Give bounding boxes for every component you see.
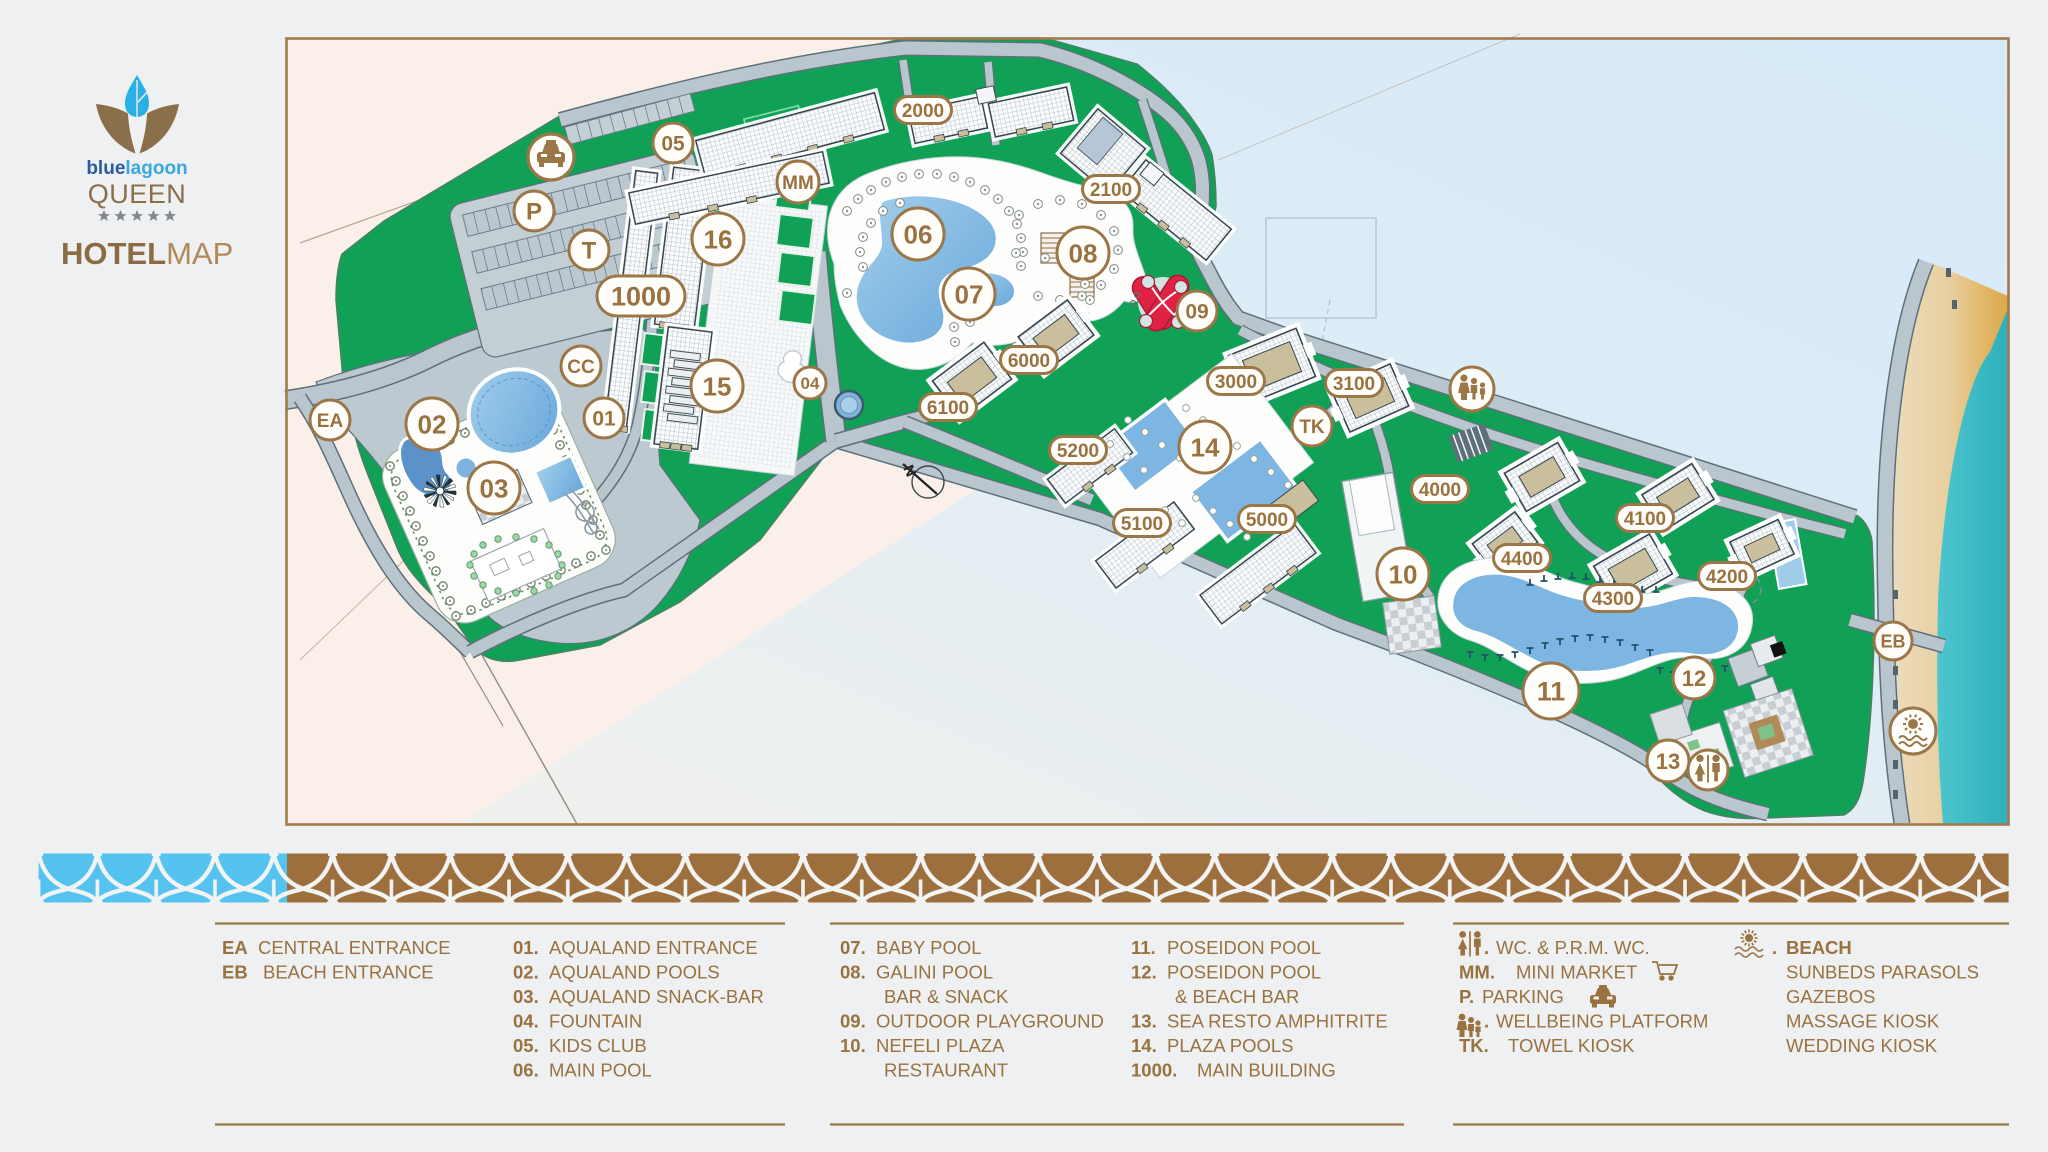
svg-text:10: 10 <box>1389 559 1418 589</box>
svg-text:4000: 4000 <box>1419 480 1461 501</box>
svg-text:HOTELMAP: HOTELMAP <box>61 236 233 271</box>
svg-text:& BEACH BAR: & BEACH BAR <box>1175 986 1299 1007</box>
svg-text:MM: MM <box>782 173 814 194</box>
svg-text:03: 03 <box>480 473 509 503</box>
svg-text:EA: EA <box>317 411 344 432</box>
svg-text:SUNBEDS PARASOLS: SUNBEDS PARASOLS <box>1786 962 1979 983</box>
svg-text:05.KIDS CLUB: 05.KIDS CLUB <box>513 1035 647 1056</box>
svg-text:2100: 2100 <box>1090 180 1132 201</box>
svg-text:14: 14 <box>1191 432 1220 462</box>
svg-text:12: 12 <box>1682 666 1706 691</box>
svg-text:4300: 4300 <box>1592 589 1634 610</box>
svg-text:MM.MINI MARKET: MM.MINI MARKET <box>1459 962 1637 983</box>
svg-text:.WELLBEING PLATFORM: .WELLBEING PLATFORM <box>1484 1011 1708 1032</box>
svg-text:01: 01 <box>592 408 616 431</box>
svg-text:07.BABY POOL: 07.BABY POOL <box>840 937 982 958</box>
svg-text:13: 13 <box>1656 749 1680 774</box>
svg-text:QUEEN: QUEEN <box>88 179 187 209</box>
svg-text:bluelagoon: bluelagoon <box>86 158 187 179</box>
svg-text:4400: 4400 <box>1501 549 1543 570</box>
svg-text:RESTAURANT: RESTAURANT <box>884 1060 1008 1081</box>
svg-text:EB: EB <box>1880 632 1905 652</box>
svg-text:10.NEFELI PLAZA: 10.NEFELI PLAZA <box>840 1035 1005 1056</box>
svg-text:01.AQUALAND ENTRANCE: 01.AQUALAND ENTRANCE <box>513 937 758 958</box>
svg-text:T: T <box>582 238 597 265</box>
svg-text:BAR & SNACK: BAR & SNACK <box>884 986 1009 1007</box>
svg-text:15: 15 <box>703 371 732 401</box>
svg-text:1000.MAIN BUILDING: 1000.MAIN BUILDING <box>1131 1060 1336 1081</box>
svg-text:04: 04 <box>801 374 820 393</box>
svg-text:08.GALINI POOL: 08.GALINI POOL <box>840 962 993 983</box>
svg-text:4200: 4200 <box>1706 567 1748 588</box>
svg-text:P: P <box>526 199 542 226</box>
svg-text:02: 02 <box>418 409 447 439</box>
svg-text:11: 11 <box>1537 677 1566 707</box>
svg-text:6000: 6000 <box>1008 351 1050 372</box>
svg-text:05: 05 <box>661 133 685 156</box>
svg-text:14.PLAZA POOLS: 14.PLAZA POOLS <box>1131 1035 1293 1056</box>
svg-text:1000: 1000 <box>611 282 671 312</box>
svg-text:3100: 3100 <box>1333 374 1375 395</box>
svg-text:16: 16 <box>704 224 733 254</box>
svg-text:07: 07 <box>955 279 984 309</box>
svg-text:06: 06 <box>904 219 933 249</box>
svg-text:WEDDING KIOSK: WEDDING KIOSK <box>1786 1035 1938 1056</box>
svg-text:.WC. & P.R.M. WC.: .WC. & P.R.M. WC. <box>1484 937 1650 958</box>
svg-text:MASSAGE KIOSK: MASSAGE KIOSK <box>1786 1011 1940 1032</box>
svg-text:TK: TK <box>1299 417 1325 438</box>
svg-text:5200: 5200 <box>1057 441 1099 462</box>
svg-text:CC: CC <box>567 357 595 378</box>
svg-text:2000: 2000 <box>902 101 944 122</box>
svg-text:09.OUTDOOR PLAYGROUND: 09.OUTDOOR PLAYGROUND <box>840 1011 1104 1032</box>
svg-text:13.SEA RESTO AMPHITRITE: 13.SEA RESTO AMPHITRITE <box>1131 1011 1388 1032</box>
svg-text:09: 09 <box>1185 301 1208 324</box>
svg-text:3000: 3000 <box>1215 372 1257 393</box>
svg-text:6100: 6100 <box>927 398 969 419</box>
svg-text:GAZEBOS: GAZEBOS <box>1786 986 1875 1007</box>
svg-text:04.FOUNTAIN: 04.FOUNTAIN <box>513 1011 642 1032</box>
svg-text:TK.TOWEL KIOSK: TK.TOWEL KIOSK <box>1459 1035 1635 1056</box>
svg-text:5100: 5100 <box>1121 514 1163 535</box>
svg-text:5000: 5000 <box>1246 510 1288 531</box>
svg-text:08: 08 <box>1069 238 1098 268</box>
svg-text:4100: 4100 <box>1624 509 1666 530</box>
svg-text:03.AQUALAND SNACK-BAR: 03.AQUALAND SNACK-BAR <box>513 986 764 1007</box>
svg-text:06.MAIN POOL: 06.MAIN POOL <box>513 1060 652 1081</box>
